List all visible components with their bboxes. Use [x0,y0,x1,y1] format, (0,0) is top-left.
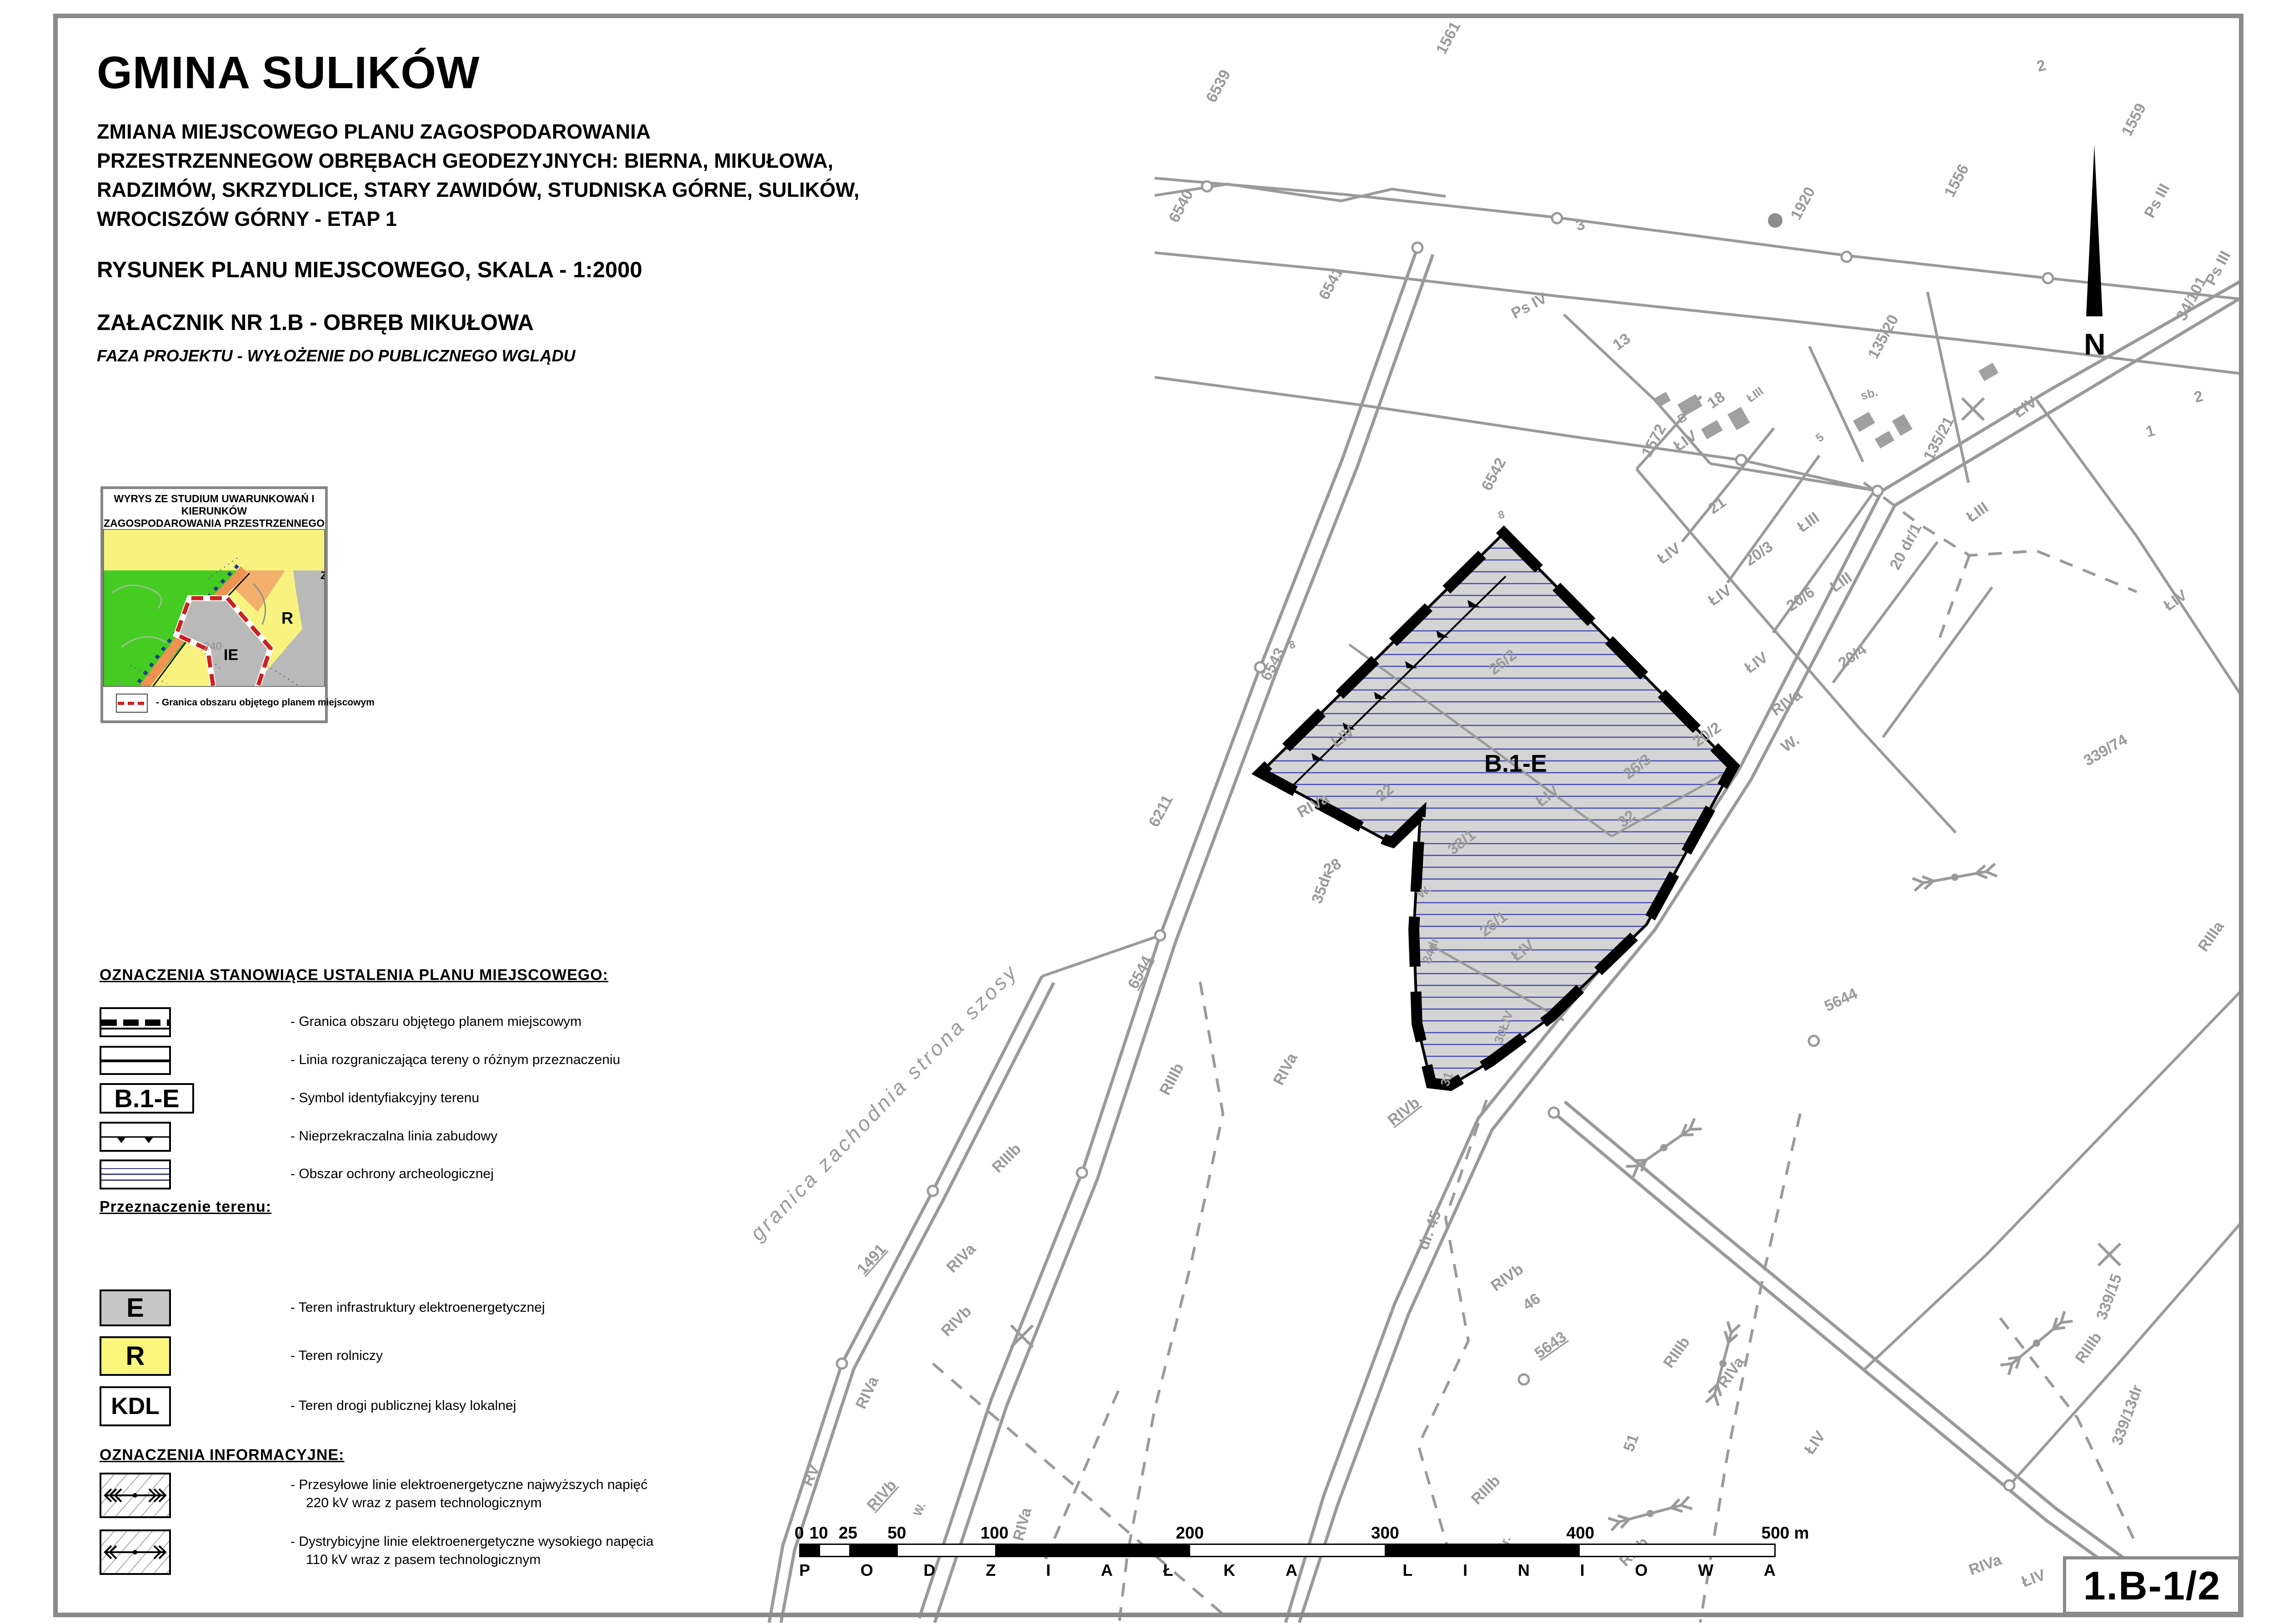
map-label: RIVb [938,1303,975,1340]
north-label: N [2084,327,2106,361]
survey-point [1809,1036,1819,1046]
map-label: ŁIII [1744,384,1766,405]
survey-point [2004,1480,2014,1490]
legend-zone-code: B.1-E [101,1085,192,1112]
scale-tick: 200 [1176,1524,1204,1543]
map-label: RIIIb [1468,1472,1504,1508]
map-label: 6544 [1125,953,1156,992]
map-label: RIVa [1967,1551,2004,1579]
survey-point [1552,213,1562,223]
map-label: 2 [2192,387,2205,406]
map-label: 1559 [2118,100,2150,139]
legend-symbol-power-110 [100,1529,171,1575]
legend-symbol-power-220 [100,1473,171,1518]
map-label: RIVa [943,1240,980,1276]
map-label: 34/101 [2173,274,2210,324]
zone-label: B.1-E [1484,750,1547,777]
legend-label: - Granica obszaru objętego planem miejsc… [290,1014,581,1029]
scale-tick: 500 m [1762,1524,1809,1543]
map-label: 46 [1520,1290,1544,1314]
legend-label: 110 kV wraz z pasem technologicznym [306,1552,541,1568]
inset-legend: - Granica obszaru objętego planem miejsc… [112,693,321,715]
map-label: RIIIa [2194,918,2228,955]
survey-point [1736,455,1746,465]
map-label: 135/20 [1865,312,1902,362]
legend-label: - Dystrybicyjne linie elektroenergetyczn… [290,1534,654,1549]
survey-point-filled [1768,213,1782,228]
scale-bar-band [799,1544,1776,1557]
map-label: 2 [2035,56,2048,75]
map-label: ŁIV [1801,1428,1829,1457]
inset-label: 240 [204,640,222,653]
survey-point [1519,1374,1529,1384]
inset-label: R [281,609,293,627]
map-label: 6211 [1146,792,1177,830]
building-footprint [1978,363,1998,381]
map-label: 13 [1610,330,1634,354]
map-label: ŁIV [1654,540,1684,568]
subtitle-line: WROCISZÓW GÓRNY - ETAP 1 [97,205,1165,234]
north-arrow-icon [2086,145,2103,316]
legend-label: - Linia rozgraniczająca tereny o różnym … [290,1052,620,1068]
scale-tick: 0 [795,1524,804,1543]
scale-tick: 300 [1371,1524,1399,1543]
sheet-number: 1.B-1/2 [2083,1563,2221,1609]
phase-line: FAZA PROJEKTU - WYŁOŻENIE DO PUBLICZNEGO… [97,346,1165,365]
map-label: ŁIII [1963,499,1992,525]
inset-legend-label: - Granica obszaru objętego planem miejsc… [156,697,375,708]
plan-subtitle: ZMIANA MIEJSCOWEGO PLANU ZAGOSPODAROWANI… [97,117,1165,234]
map-label: 18 [1704,388,1728,412]
sheet-number-box: 1.B-1/2 [2063,1556,2241,1615]
map-label: 5 [1813,430,1826,445]
map-label: 6539 [1203,67,1234,105]
building-footprint [1727,407,1750,430]
drawing-scale-line: RYSUNEK PLANU MIEJSCOWEGO, SKALA - 1:200… [97,257,1165,283]
legend-section2-title: Przeznaczenie terenu: [100,1198,271,1216]
legend-symbol-building-line [100,1122,171,1152]
legend-landuse-KDL: KDL [100,1386,171,1426]
map-label: ŁIV [1705,581,1735,610]
scale-bar-caption: PODZIAŁKA LINIOWA [799,1561,1776,1580]
map-label: 135/21 [1920,414,1958,464]
survey-point [1077,1168,1087,1178]
survey-point [1412,243,1422,253]
survey-point [1872,486,1882,496]
legend-label: - Teren infrastruktury elektroenergetycz… [290,1300,545,1315]
study-inset: WYRYS ZE STUDIUM UWARUNKOWAŃ I KIERUNKÓW… [100,486,328,723]
legend-label: - Obszar ochrony archeologicznej [290,1166,494,1182]
subtitle-line: ZMIANA MIEJSCOWEGO PLANU ZAGOSPODAROWANI… [97,117,1165,146]
legend-label: - Przesyłowe linie elektroenergetyczne n… [290,1477,647,1493]
survey-point [1549,1108,1559,1118]
map-label: RIVa [1270,1050,1302,1088]
map-label: Ps III [2141,181,2173,221]
map-label: 5644 [1822,985,1860,1015]
legend-symbol-area-symbol: B.1-E [100,1083,194,1114]
map-label: ŁIII [1794,509,1822,535]
legend-landuse-E: E [100,1289,171,1326]
map-label: 339/13dr [2108,1383,2146,1448]
attachment-line: ZAŁACZNIK NR 1.B - OBRĘB MIKUŁOWA [97,310,1165,335]
landuse-code: KDL [101,1388,169,1424]
inset-label: IE [224,646,238,664]
map-label: 1491 [854,1241,890,1278]
survey-point [928,1186,938,1196]
map-label: 339/74 [2081,731,2130,770]
map-label: 1556 [1941,161,1973,200]
legend-label: - Symbol identyfiakcyjny terenu [290,1090,479,1106]
subtitle-line: RADZIMÓW, SKRZYDLICE, STARY ZAWIDÓW, STU… [97,175,1165,205]
landuse-code: E [101,1291,169,1324]
map-label: RIIIb [989,1140,1025,1176]
map-label: 1561 [1433,19,1464,57]
map-label: 6542 [1478,455,1510,494]
map-label: 21 [1705,494,1729,518]
map-label: 1920 [1787,184,1819,223]
title-block: GMINA SULIKÓW ZMIANA MIEJSCOWEGO PLANU Z… [97,50,1165,365]
survey-point [1155,930,1165,940]
legend-section1-title: OZNACZENIA STANOWIĄCE USTALENIA PLANU MI… [100,966,608,984]
map-label: RIIIb [2072,1329,2105,1366]
map-label: RIIIb [1660,1334,1693,1371]
landuse-code: R [101,1338,169,1374]
survey-point [2043,273,2053,283]
survey-point [837,1359,847,1369]
page-title: GMINA SULIKÓW [97,50,1165,95]
map-label: RIIIb [1157,1060,1187,1098]
map-label: 5643 [1532,1328,1570,1362]
map-label: 3 [1574,215,1587,235]
map-label: 20/3 [1742,538,1776,569]
map-label: 8 [1288,638,1297,652]
scale-tick: 50 [887,1524,906,1543]
legend-label: - Nieprzekraczalna linia zabudowy [290,1129,497,1144]
legend-symbol-plan-boundary [100,1007,171,1037]
map-label: RIVb [1488,1260,1527,1295]
map-label: 51 [1620,1432,1642,1454]
map-label: 1 [2144,422,2157,441]
building-footprint [1853,412,1875,432]
map-label: sb. [1859,385,1879,403]
legend-label: - Teren drogi publicznej klasy lokalnej [290,1398,516,1414]
power-line-marker [1626,1119,1702,1177]
scale-tick: 400 [1567,1524,1595,1543]
legend-landuse-R: R [100,1336,171,1376]
survey-point [1202,181,1212,191]
building-footprint [1701,420,1723,440]
building-footprint [1875,431,1894,449]
scale-tick: 10 [809,1524,828,1543]
survey-point [1842,252,1852,262]
map-label: 1572 [1638,421,1670,460]
map-label: W. [910,1500,928,1518]
legend-label: 220 kV wraz z pasem technologicznym [306,1495,542,1511]
road-annotation: granica zachodnia strona szosy [745,959,1022,1245]
scale-tick: 25 [839,1524,857,1543]
map-label: 8 [1497,508,1506,522]
north-arrow: N [2084,145,2106,361]
map-label: RIVa [852,1374,882,1412]
legend-symbol-dividing-line [100,1046,171,1075]
scale-bar: 0102550100200300400500 m PODZIAŁKA LINIO… [799,1524,1776,1583]
map-label: 339/15 [2093,1272,2125,1322]
inset-map-svg: IER240Zl13720 [103,529,325,687]
legend-section3-title: OZNACZENIA INFORMACYJNE: [100,1446,344,1464]
plan-boundary-sample [116,694,148,713]
subtitle-line: PRZESTRZENNEGOW OBRĘBACH GEODEZYJNYCH: B… [97,146,1165,175]
power-line-marker [1913,864,1997,891]
plan-sheet: B.1-E653965401561155915561920326541Ps IV… [0,0,2273,1624]
scale-tick: 100 [981,1524,1009,1543]
map-label: RIVb [1385,1094,1423,1129]
map-label: RIVb [864,1476,900,1514]
map-label: W. [1778,731,1802,756]
legend-label: - Teren rolniczy [290,1348,383,1364]
map-label: 20/4 [1835,640,1870,672]
map-label: ŁIV [1742,649,1771,677]
legend-symbol-arch-area [100,1159,171,1189]
map-label: ŁIV [2019,1566,2048,1591]
